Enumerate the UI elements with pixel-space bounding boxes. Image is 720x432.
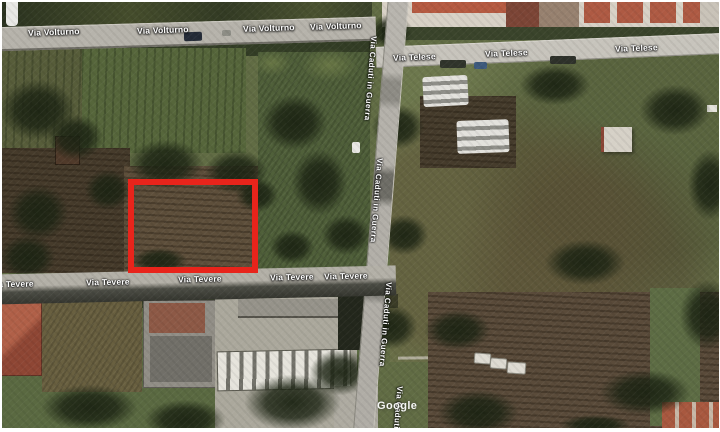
frame-top: [0, 0, 720, 2]
tree-shadow: [270, 230, 314, 264]
truck: [490, 357, 508, 369]
building-roof: [150, 336, 212, 382]
car: [352, 142, 360, 153]
tree-shadow: [545, 240, 625, 285]
road-label: Via Tevere: [270, 272, 314, 283]
tree-shadow: [8, 185, 68, 240]
tree-shadow: [425, 310, 490, 350]
highlight-rectangle: [128, 179, 258, 273]
greenhouse: [456, 119, 509, 154]
car: [474, 62, 487, 69]
road-label: Via Tevere: [178, 274, 222, 285]
road-label: Via Telese: [485, 47, 528, 59]
road-label: Via Tevere: [0, 279, 34, 290]
tree-shadow: [262, 95, 327, 150]
satellite-map[interactable]: Via VolturnoVia VolturnoVia VolturnoVia …: [0, 0, 720, 432]
tree-shadow: [438, 390, 518, 432]
field-patch: [42, 300, 142, 392]
white-structure: [6, 0, 18, 26]
tree-shadow: [688, 150, 720, 220]
road-label: Via Tevere: [324, 271, 368, 282]
tree-shadow: [640, 85, 710, 135]
tree-shadow: [322, 215, 370, 255]
greenhouse: [422, 75, 469, 107]
tree-shadow: [292, 150, 347, 215]
white-shed: [601, 127, 632, 152]
depot-building: [238, 299, 338, 318]
frame-bottom: [0, 428, 720, 432]
building-roof: [506, 0, 539, 29]
tree-shadow: [48, 115, 103, 160]
building-roof: [149, 303, 205, 333]
road-label: Via Volturno: [243, 22, 295, 34]
tree-shadow: [520, 65, 590, 105]
car: [222, 30, 231, 36]
car: [440, 60, 466, 68]
road-label: Via Volturno: [28, 26, 80, 38]
car: [550, 56, 576, 64]
bush: [300, 48, 360, 82]
screenshot: Via VolturnoVia VolturnoVia VolturnoVia …: [0, 0, 720, 432]
truck: [507, 361, 527, 374]
road-label: Via Volturno: [137, 24, 189, 36]
tree-shadow: [85, 170, 131, 210]
red-roof-house: [0, 300, 42, 376]
road-label: Via Tevere: [86, 277, 130, 288]
building-roof: [539, 0, 579, 27]
tree-shadow: [42, 385, 137, 430]
tree-shadow: [600, 370, 690, 415]
tree-shadow: [680, 280, 720, 350]
google-watermark: Google: [377, 400, 417, 412]
road-label: Via Volturno: [310, 20, 362, 32]
bush: [252, 50, 292, 76]
truck: [474, 352, 492, 364]
road-label: Via Telese: [615, 42, 658, 54]
frame-left: [0, 0, 2, 432]
road-label: Via Telese: [393, 51, 436, 63]
